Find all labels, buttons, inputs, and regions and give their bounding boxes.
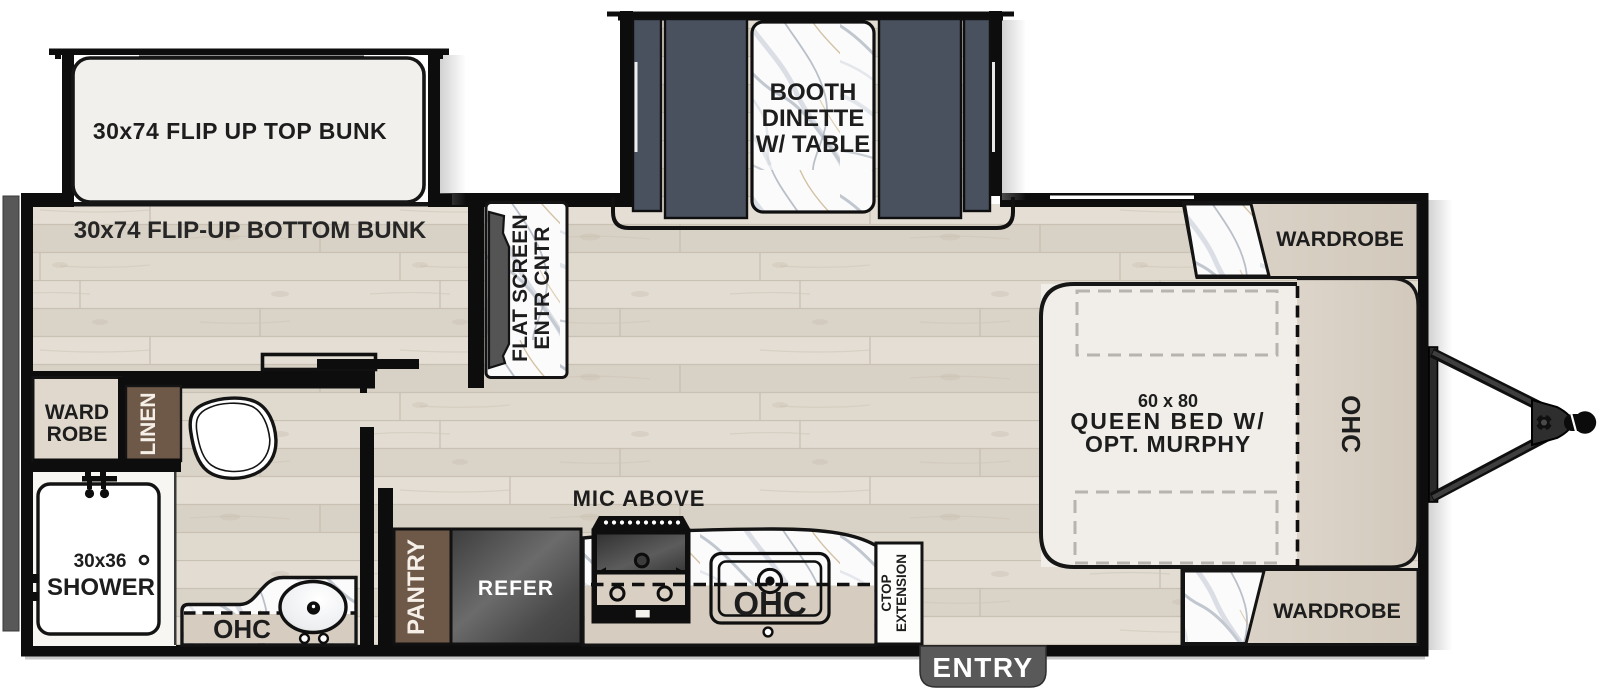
svg-text:OHC: OHC — [1336, 395, 1366, 453]
svg-text:CTOP: CTOP — [879, 574, 894, 611]
svg-text:WARD: WARD — [45, 401, 109, 424]
svg-text:OHC: OHC — [213, 614, 271, 644]
svg-text:30x36: 30x36 — [74, 551, 127, 572]
svg-text:ENTRY: ENTRY — [932, 652, 1033, 683]
svg-text:DINETTE: DINETTE — [762, 105, 865, 132]
svg-text:30x74 FLIP UP TOP BUNK: 30x74 FLIP UP TOP BUNK — [93, 118, 387, 144]
svg-text:BOOTH: BOOTH — [770, 79, 857, 106]
svg-text:LINEN: LINEN — [137, 393, 160, 456]
svg-text:ROBE: ROBE — [47, 423, 108, 446]
svg-text:WARDROBE: WARDROBE — [1276, 227, 1404, 251]
svg-text:PANTRY: PANTRY — [403, 539, 430, 635]
svg-text:SHOWER: SHOWER — [47, 574, 155, 601]
svg-text:REFER: REFER — [478, 577, 554, 600]
svg-text:WARDROBE: WARDROBE — [1273, 599, 1401, 623]
svg-text:OPT. MURPHY: OPT. MURPHY — [1085, 431, 1251, 457]
svg-text:FLAT SCREEN: FLAT SCREEN — [509, 214, 532, 362]
svg-text:ENTR CNTR: ENTR CNTR — [531, 226, 554, 349]
svg-text:OHC: OHC — [733, 585, 806, 622]
svg-text:30x74 FLIP-UP BOTTOM BUNK: 30x74 FLIP-UP BOTTOM BUNK — [74, 217, 427, 244]
svg-text:MIC ABOVE: MIC ABOVE — [573, 486, 706, 511]
svg-text:EXTENSION: EXTENSION — [894, 554, 909, 632]
svg-text:W/ TABLE: W/ TABLE — [756, 131, 870, 158]
